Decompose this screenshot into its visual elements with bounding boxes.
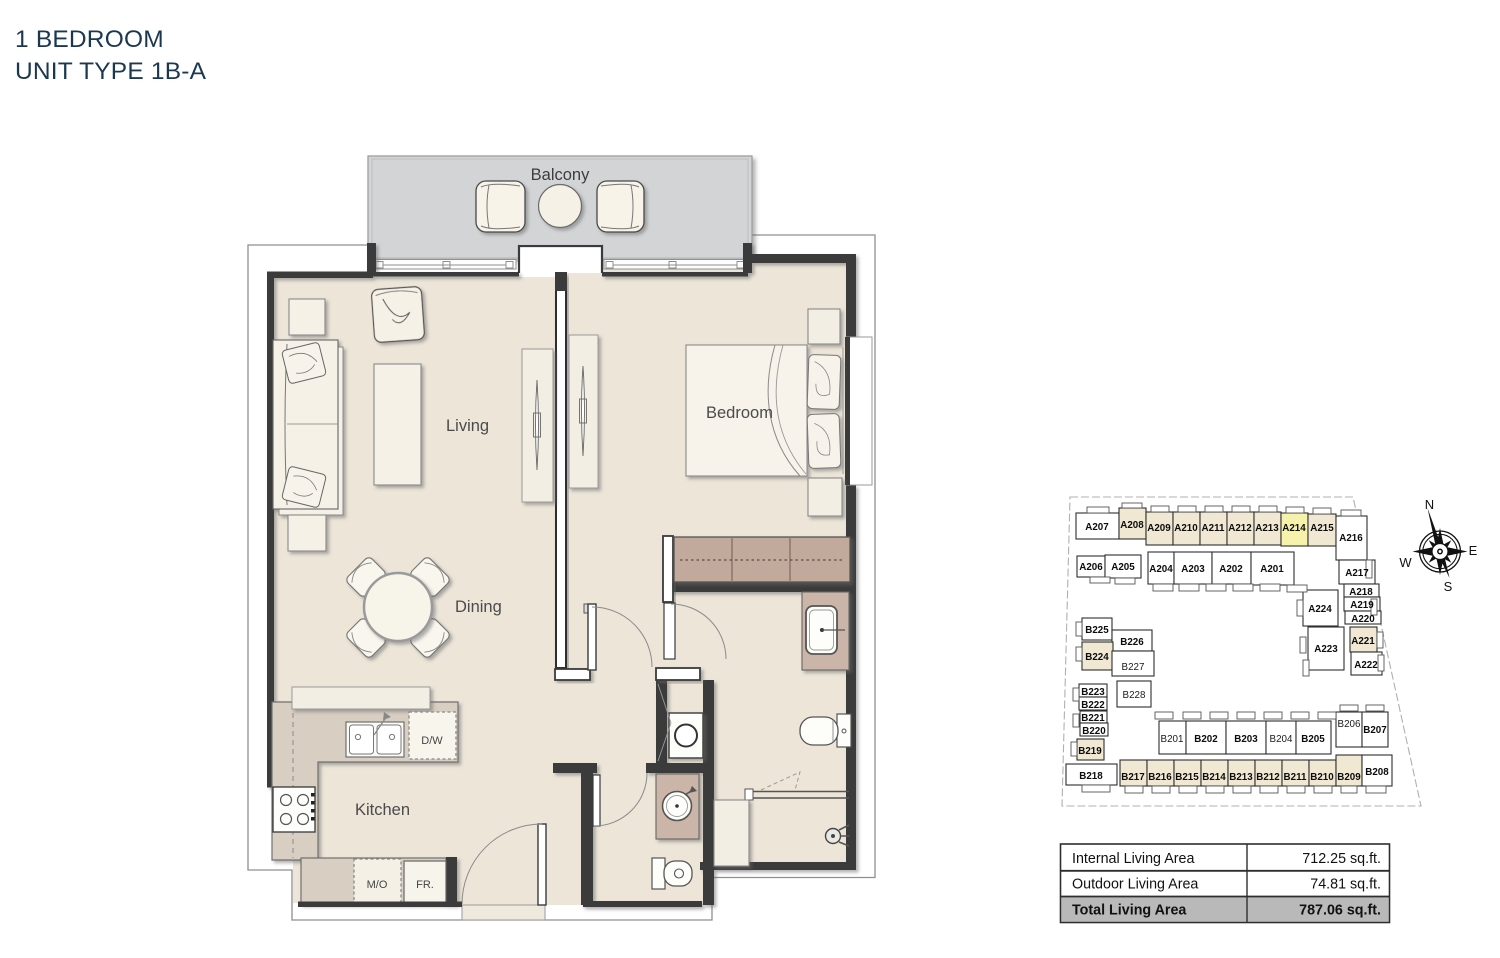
svg-text:E: E (1469, 543, 1478, 558)
svg-text:A224: A224 (1308, 604, 1332, 615)
svg-text:B215: B215 (1175, 772, 1199, 783)
svg-text:787.06 sq.ft.: 787.06 sq.ft. (1299, 903, 1381, 919)
svg-text:A213: A213 (1255, 523, 1279, 534)
svg-text:Kitchen: Kitchen (355, 801, 410, 819)
svg-text:A210: A210 (1174, 523, 1198, 534)
svg-text:A223: A223 (1314, 644, 1338, 655)
svg-text:Internal Living Area: Internal Living Area (1072, 851, 1194, 867)
svg-text:M/O: M/O (367, 879, 388, 891)
svg-text:B205: B205 (1301, 734, 1325, 745)
svg-text:B208: B208 (1365, 767, 1389, 778)
svg-text:74.81 sq.ft.: 74.81 sq.ft. (1310, 877, 1381, 893)
svg-text:B203: B203 (1234, 734, 1258, 745)
svg-text:B228: B228 (1123, 690, 1146, 701)
svg-text:W: W (1399, 555, 1412, 570)
svg-text:B213: B213 (1229, 772, 1253, 783)
svg-text:B226: B226 (1120, 637, 1144, 648)
svg-text:D/W: D/W (421, 735, 443, 747)
svg-text:B217: B217 (1121, 772, 1145, 783)
svg-text:A207: A207 (1085, 522, 1109, 533)
svg-text:S: S (1444, 579, 1453, 594)
svg-text:A209: A209 (1147, 523, 1171, 534)
svg-text:A218: A218 (1349, 587, 1373, 598)
svg-text:A201: A201 (1260, 564, 1284, 575)
svg-text:A216: A216 (1339, 533, 1363, 544)
svg-text:B202: B202 (1194, 734, 1218, 745)
svg-text:Living: Living (446, 417, 489, 435)
svg-text:B207: B207 (1363, 725, 1387, 736)
svg-text:B210: B210 (1310, 772, 1334, 783)
svg-text:Balcony: Balcony (531, 166, 590, 184)
svg-text:FR.: FR. (416, 879, 434, 891)
svg-text:B204: B204 (1270, 734, 1293, 745)
svg-text:B211: B211 (1284, 772, 1307, 783)
svg-text:B225: B225 (1085, 625, 1109, 636)
svg-text:A219: A219 (1350, 600, 1374, 611)
svg-text:A220: A220 (1351, 614, 1375, 625)
svg-text:B212: B212 (1256, 772, 1280, 783)
svg-text:B214: B214 (1202, 772, 1226, 783)
svg-text:A214: A214 (1282, 523, 1306, 534)
svg-text:B223: B223 (1081, 687, 1105, 698)
svg-text:A222: A222 (1354, 660, 1378, 671)
svg-text:A202: A202 (1219, 564, 1243, 575)
svg-text:A212: A212 (1228, 523, 1252, 534)
svg-text:UNIT TYPE 1B-A: UNIT TYPE 1B-A (15, 58, 207, 85)
svg-text:A217: A217 (1345, 568, 1369, 579)
svg-text:A205: A205 (1111, 562, 1135, 573)
svg-text:B220: B220 (1082, 726, 1106, 737)
svg-text:B222: B222 (1081, 700, 1105, 711)
svg-text:A206: A206 (1079, 562, 1103, 573)
svg-text:B201: B201 (1161, 734, 1184, 745)
svg-text:A221: A221 (1351, 636, 1375, 647)
svg-text:B206: B206 (1338, 719, 1361, 730)
svg-text:B219: B219 (1078, 746, 1102, 757)
svg-text:N: N (1425, 497, 1434, 512)
svg-text:1 BEDROOM: 1 BEDROOM (15, 26, 164, 53)
svg-text:B224: B224 (1085, 652, 1109, 663)
svg-text:Total Living Area: Total Living Area (1072, 903, 1187, 919)
svg-text:A211: A211 (1202, 523, 1225, 534)
svg-text:Bedroom: Bedroom (706, 404, 773, 422)
svg-text:B221: B221 (1081, 713, 1105, 724)
svg-text:B209: B209 (1337, 772, 1361, 783)
svg-text:A204: A204 (1149, 564, 1173, 575)
svg-text:A203: A203 (1181, 564, 1205, 575)
svg-text:A215: A215 (1310, 523, 1334, 534)
svg-text:B216: B216 (1148, 772, 1172, 783)
svg-text:Outdoor Living Area: Outdoor Living Area (1072, 877, 1198, 893)
svg-text:B218: B218 (1079, 771, 1103, 782)
svg-text:Dining: Dining (455, 598, 502, 616)
svg-text:A208: A208 (1120, 520, 1144, 531)
svg-text:B227: B227 (1122, 662, 1145, 673)
svg-text:712.25 sq.ft.: 712.25 sq.ft. (1302, 851, 1381, 867)
